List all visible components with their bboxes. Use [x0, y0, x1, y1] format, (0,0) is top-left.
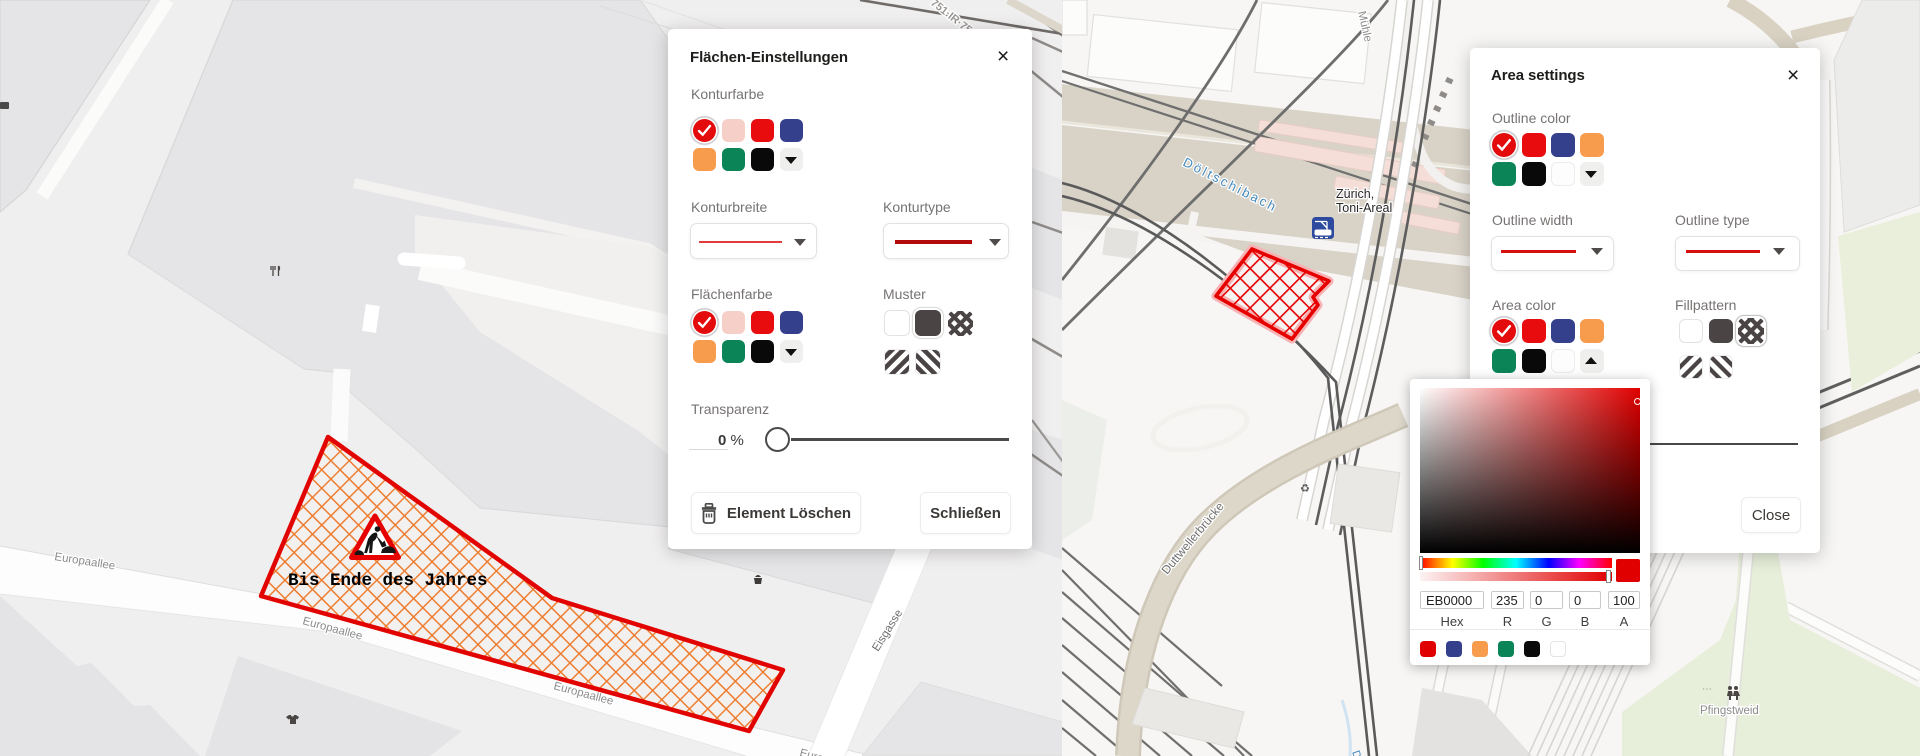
svg-text:♻: ♻	[1300, 483, 1310, 495]
svg-text:Pfingstweid: Pfingstweid	[1700, 705, 1759, 717]
svg-text:⋯: ⋯	[1702, 684, 1712, 695]
svg-text:Zürich,: Zürich,	[1336, 187, 1374, 201]
svg-text:Bis Ende des Jahres: Bis Ende des Jahres	[288, 571, 488, 591]
svg-text:Toni-Areal: Toni-Areal	[1336, 201, 1392, 215]
